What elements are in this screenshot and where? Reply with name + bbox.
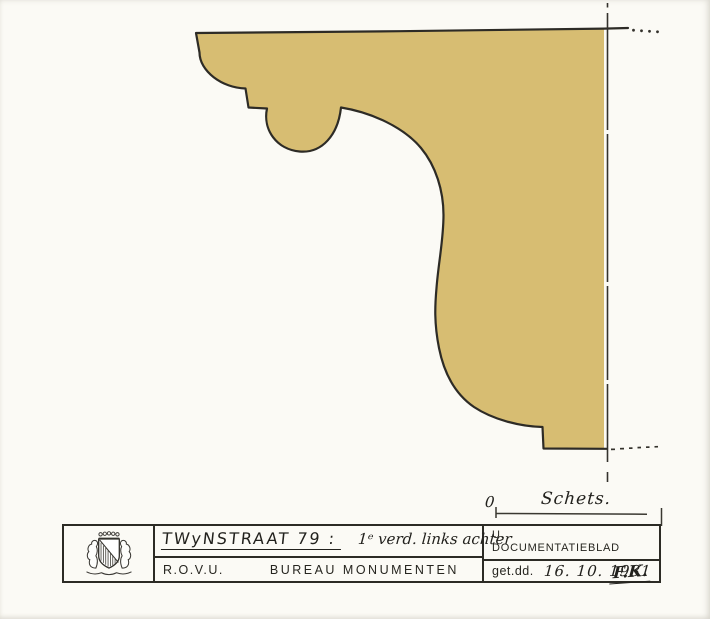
signature: F.K. xyxy=(610,560,652,584)
organisation-row: R.O.V.U. BUREAU MONUMENTEN xyxy=(155,558,482,581)
date-label: get.dd. xyxy=(492,564,534,578)
title-cell: TWyNSTRAAT 79 : 1ᵉ verd. links achter R.… xyxy=(153,526,482,581)
date-row: get.dd. 16. 10. 1981 F.K. xyxy=(484,561,659,581)
street-row: TWyNSTRAAT 79 : 1ᵉ verd. links achter xyxy=(155,526,482,558)
console-profile-fill xyxy=(196,29,604,449)
crest-lion-right xyxy=(120,540,130,568)
org-department: BUREAU MONUMENTEN xyxy=(270,563,459,577)
org-abbreviation: R.O.V.U. xyxy=(163,563,224,577)
logo-cell xyxy=(64,526,153,581)
doc-type-line1: U. xyxy=(492,529,659,542)
dotted-extension-bottom xyxy=(611,447,658,450)
documentation-sheet: 0 Schets. xyxy=(0,0,710,619)
dotted-extension-top xyxy=(632,29,659,33)
coat-of-arms-icon xyxy=(79,530,139,578)
crest-crown xyxy=(98,531,119,537)
crest-shield xyxy=(98,539,119,568)
scale-zero-label: 0 xyxy=(484,493,495,511)
crest-base-scroll xyxy=(86,571,131,574)
street-title: TWyNSTRAAT 79 : xyxy=(161,529,343,550)
doc-type-line2: DOCUMENTATIEBLAD xyxy=(492,542,659,555)
title-block: TWyNSTRAAT 79 : 1ᵉ verd. links achter R.… xyxy=(62,524,661,583)
scale-label: Schets. xyxy=(540,489,612,509)
crest-lion-left xyxy=(87,540,97,568)
location-annotation: 1ᵉ verd. links achter xyxy=(358,530,513,548)
